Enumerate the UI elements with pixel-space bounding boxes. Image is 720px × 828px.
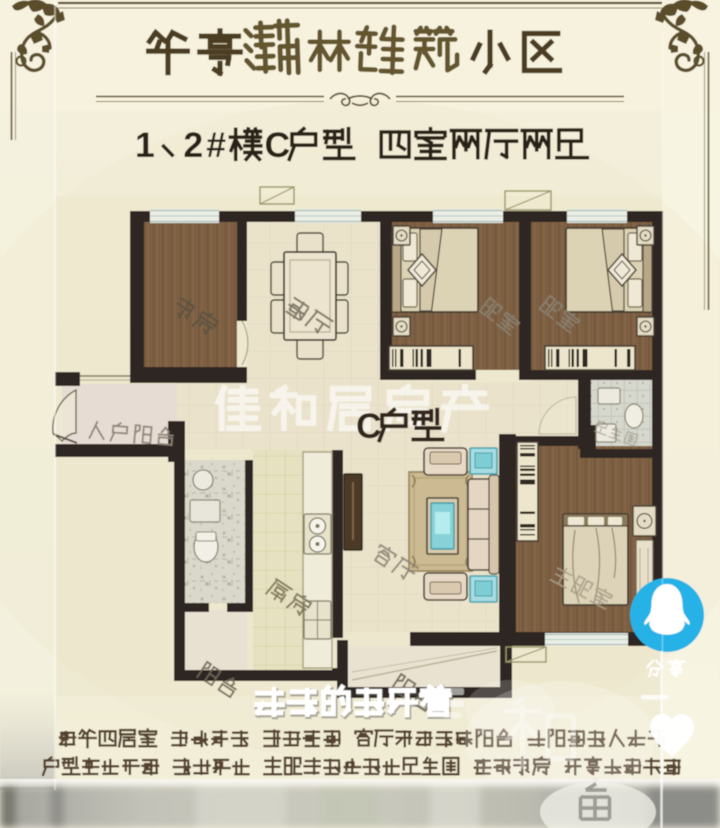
svg-text:#: # bbox=[206, 125, 226, 165]
svg-text:1: 1 bbox=[135, 125, 155, 165]
svg-text:C: C bbox=[265, 125, 291, 165]
svg-text:C: C bbox=[356, 406, 382, 446]
svg-text:2: 2 bbox=[183, 125, 203, 165]
